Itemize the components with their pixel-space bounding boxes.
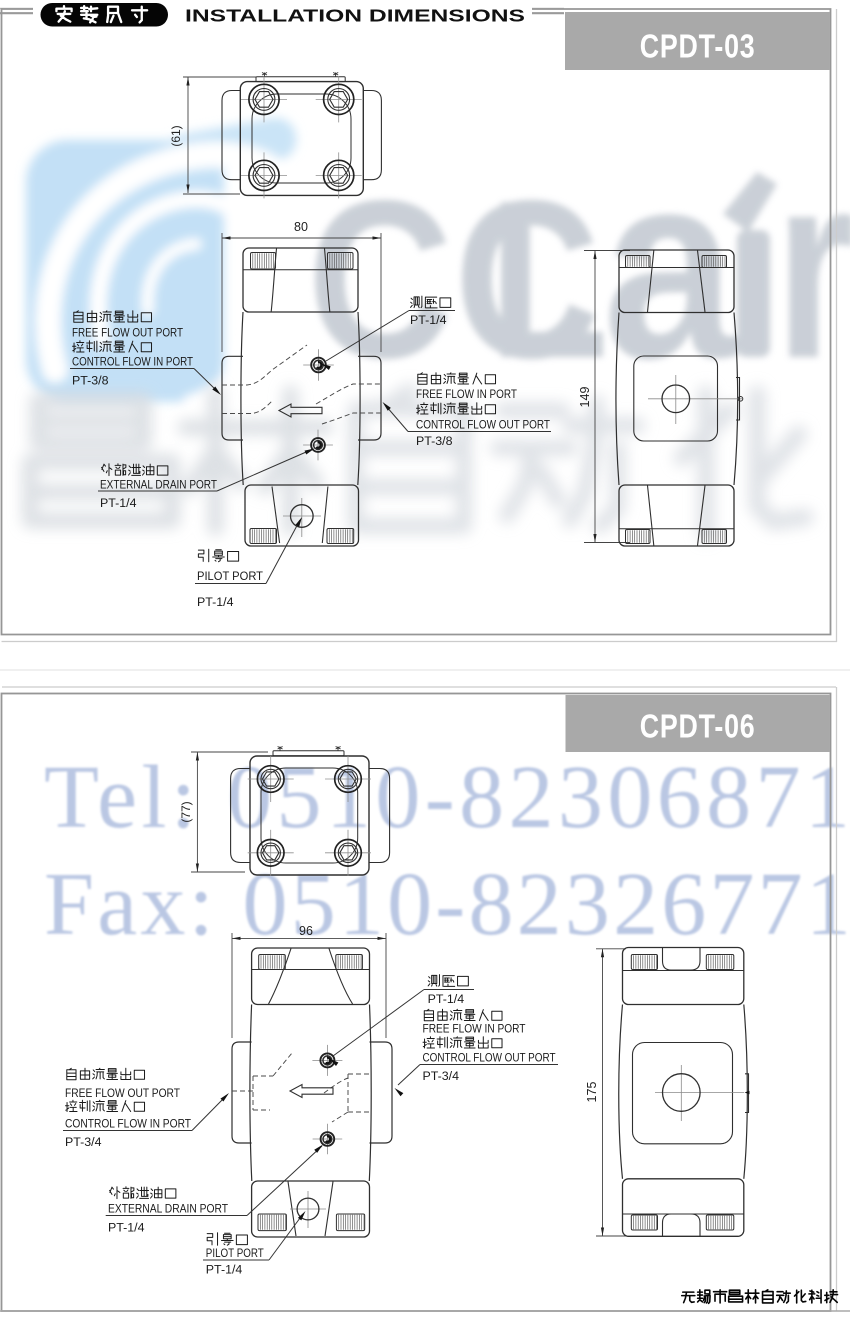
- svg-text:Tel: 0510-82306871: Tel: 0510-82306871: [44, 748, 850, 847]
- svg-text:(77): (77): [179, 801, 193, 822]
- svg-text:CONTROL FLOW OUT PORT: CONTROL FLOW OUT PORT: [423, 1051, 556, 1065]
- svg-text:PT-1/4: PT-1/4: [206, 1263, 243, 1277]
- svg-text:PT-3/8: PT-3/8: [72, 374, 109, 388]
- svg-text:FREE FLOW IN PORT: FREE FLOW IN PORT: [416, 387, 517, 401]
- svg-text:175: 175: [585, 1082, 599, 1103]
- svg-text:EXTERNAL DRAIN PORT: EXTERNAL DRAIN PORT: [108, 1202, 228, 1216]
- svg-text:INSTALLATION DIMENSIONS: INSTALLATION DIMENSIONS: [185, 6, 525, 26]
- svg-text:L: L: [488, 153, 609, 405]
- svg-text:FREE FLOW IN PORT: FREE FLOW IN PORT: [423, 1022, 526, 1036]
- svg-text:PT-1/4: PT-1/4: [428, 992, 465, 1006]
- svg-text:PT-1/4: PT-1/4: [100, 496, 137, 510]
- svg-text:CPDT-06: CPDT-06: [640, 709, 756, 745]
- svg-text:Fax: 0510-82326771: Fax: 0510-82326771: [44, 855, 850, 954]
- svg-text:CONTROL FLOW IN PORT: CONTROL FLOW IN PORT: [65, 1117, 191, 1131]
- svg-text:PILOT PORT: PILOT PORT: [206, 1246, 264, 1260]
- svg-text:96: 96: [299, 924, 313, 938]
- svg-text:PT-1/4: PT-1/4: [410, 313, 447, 327]
- svg-text:CPDT-03: CPDT-03: [640, 29, 756, 65]
- svg-text:PT-3/8: PT-3/8: [416, 434, 453, 448]
- svg-text:PT-1/4: PT-1/4: [197, 595, 234, 609]
- svg-text:PILOT PORT: PILOT PORT: [197, 569, 263, 583]
- svg-text:CONTROL FLOW IN PORT: CONTROL FLOW IN PORT: [72, 355, 193, 369]
- svg-text:r: r: [775, 118, 850, 414]
- svg-text:FREE FLOW OUT PORT: FREE FLOW OUT PORT: [72, 326, 183, 340]
- svg-text:PT-1/4: PT-1/4: [108, 1221, 145, 1235]
- svg-text:EXTERNAL DRAIN PORT: EXTERNAL DRAIN PORT: [100, 478, 217, 492]
- svg-text:80: 80: [294, 220, 308, 234]
- svg-text:(61): (61): [169, 125, 183, 146]
- svg-text:149: 149: [578, 387, 592, 408]
- svg-text:PT-3/4: PT-3/4: [423, 1069, 460, 1083]
- svg-text:PT-3/4: PT-3/4: [65, 1135, 102, 1149]
- svg-text:CONTROL FLOW OUT PORT: CONTROL FLOW OUT PORT: [416, 418, 550, 432]
- svg-text:FREE FLOW OUT PORT: FREE FLOW OUT PORT: [65, 1086, 180, 1100]
